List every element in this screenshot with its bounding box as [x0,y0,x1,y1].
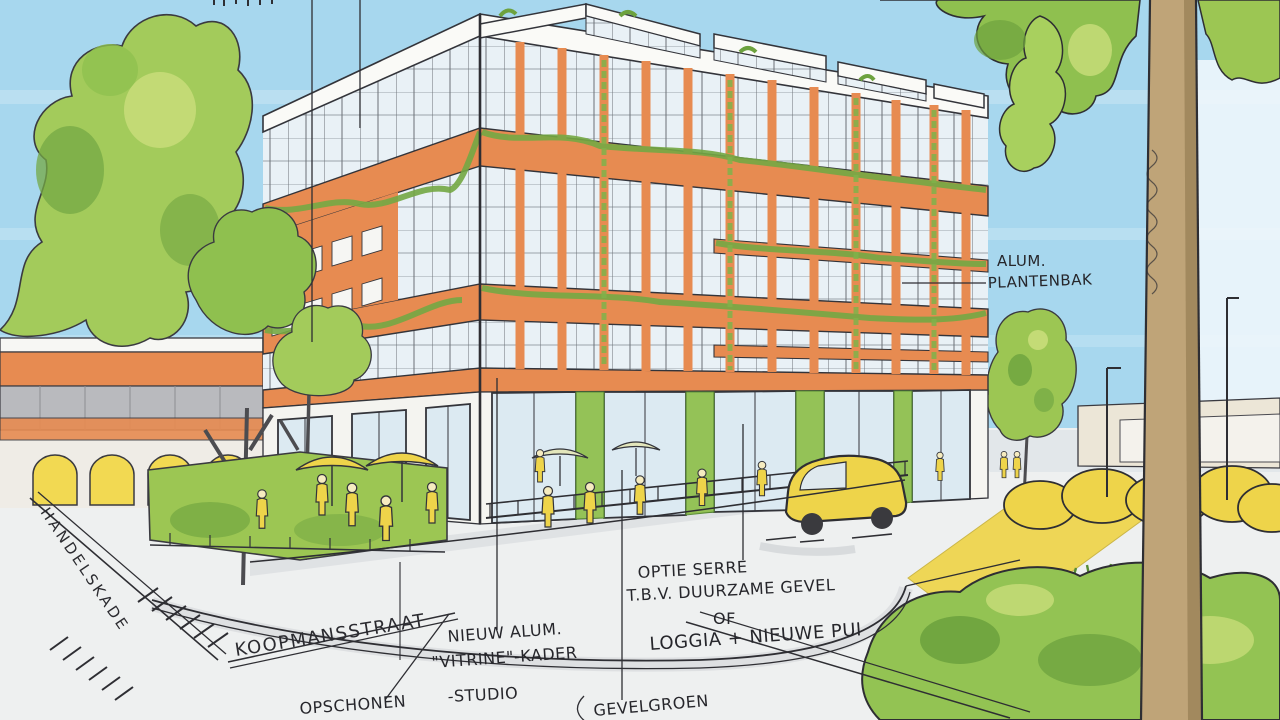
annotation-vitrine-line3: -STUDIO [447,683,518,706]
annotation-serre-line3: OF [713,609,736,628]
marker-sketch: ALUM. PLANTENBAK HANDELSKADE KOOPMANSSTR… [0,0,1280,720]
annotation-plantenbak-line2: PLANTENBAK [988,270,1094,292]
annotation-plantenbak-line1: ALUM. [997,252,1046,270]
sketch-canvas: ALUM. PLANTENBAK HANDELSKADE KOOPMANSSTR… [0,0,1280,720]
